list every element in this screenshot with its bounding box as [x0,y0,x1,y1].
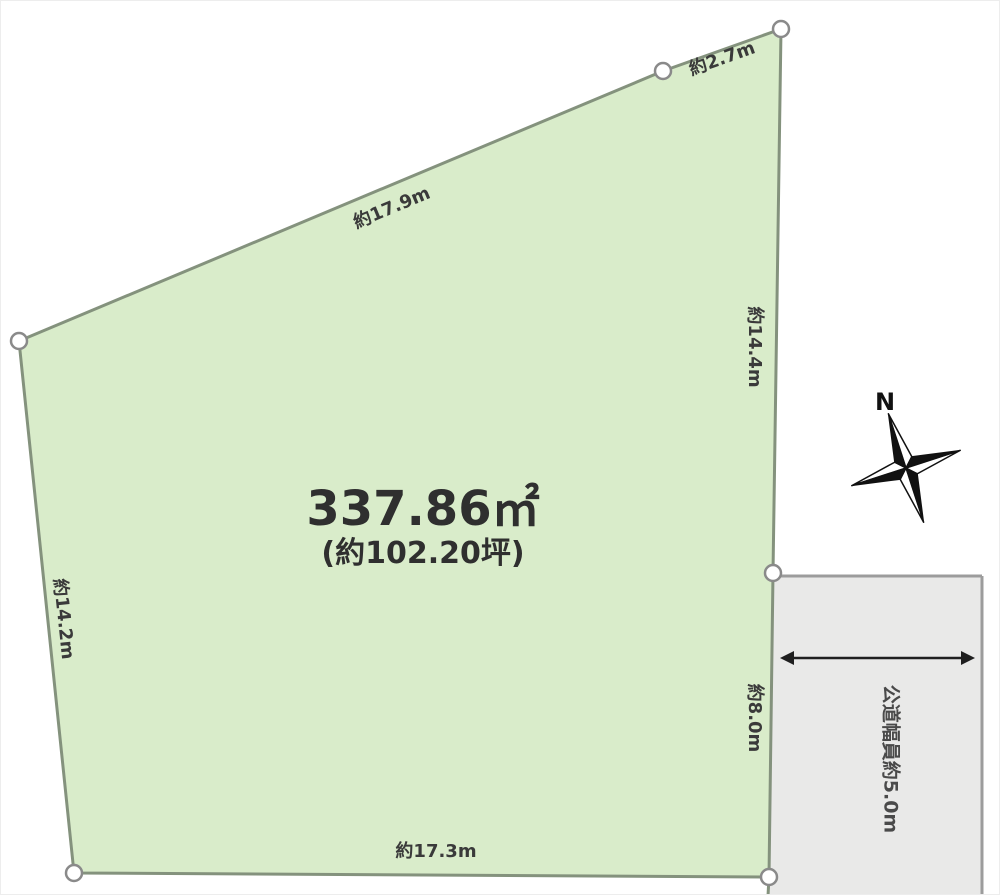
compass-north-label: N [875,388,895,416]
road-width-label: 公道幅員約5.0m [880,685,903,833]
compass-rose: N [834,388,978,540]
vertex-marker [11,333,27,349]
edge-label-right-lower: 約8.0m [744,684,766,753]
road-area [768,576,982,895]
vertex-marker [655,63,671,79]
vertex-marker [761,869,777,885]
vertex-marker [765,565,781,581]
vertex-marker [773,21,789,37]
land-plot-diagram: 公道幅員約5.0m 約17.9m 約2.7m 約14.4m 約8.0m 約17.… [0,0,1000,895]
plot-diagram-svg: 公道幅員約5.0m 約17.9m 約2.7m 約14.4m 約8.0m 約17.… [1,1,1000,895]
edge-label-bottom: 約17.3m [395,840,476,862]
edge-label-right-upper: 約14.4m [744,306,766,387]
parcel-polygon [19,29,781,877]
area-tsubo-value: (約102.20坪) [321,536,524,571]
area-value: 337.86㎡ [306,481,539,537]
compass-star-icon [834,396,978,540]
vertex-marker [66,865,82,881]
